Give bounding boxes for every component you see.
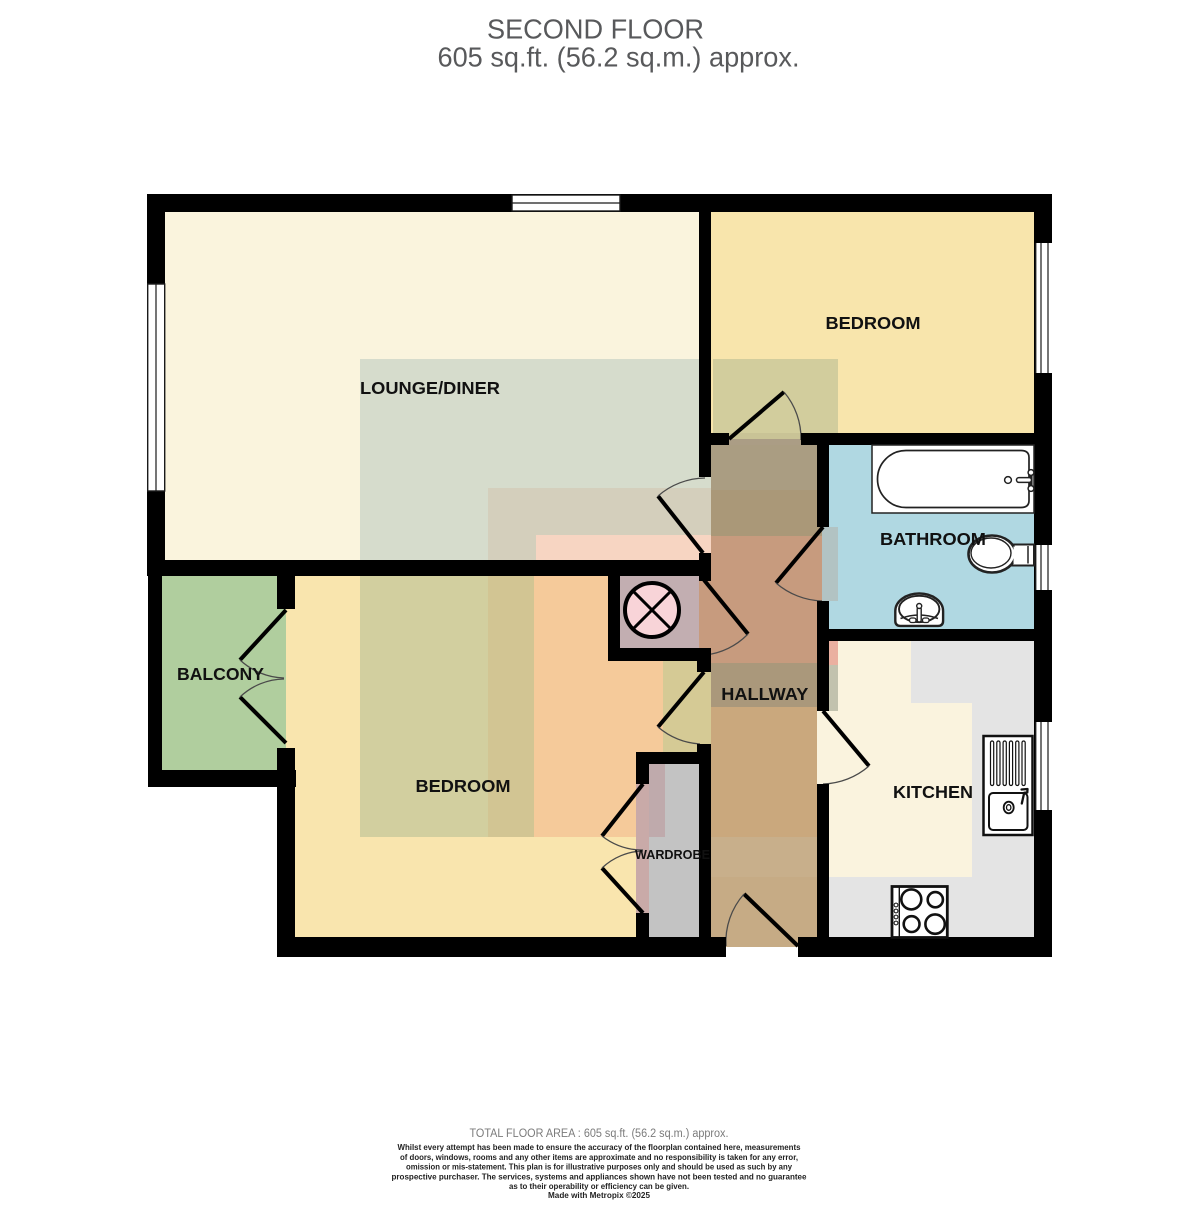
svg-text:omission or mis-statement. Thi: omission or mis-statement. This plan is …: [406, 1162, 792, 1172]
svg-text:Made with Metropix ©2025: Made with Metropix ©2025: [548, 1190, 650, 1200]
svg-text:BEDROOM: BEDROOM: [826, 313, 921, 333]
svg-text:WARDROBE: WARDROBE: [635, 848, 710, 862]
svg-text:KITCHEN: KITCHEN: [893, 782, 973, 802]
svg-text:BATHROOM: BATHROOM: [880, 529, 986, 549]
svg-text:BEDROOM: BEDROOM: [416, 776, 511, 796]
svg-text:605 sq.ft. (56.2 sq.m.) approx: 605 sq.ft. (56.2 sq.m.) approx.: [438, 42, 800, 73]
svg-text:Whilst every attempt has been: Whilst every attempt has been made to en…: [398, 1142, 801, 1152]
svg-text:BALCONY: BALCONY: [177, 664, 264, 684]
svg-text:SECOND FLOOR: SECOND FLOOR: [487, 14, 704, 45]
svg-text:HALLWAY: HALLWAY: [721, 684, 808, 704]
svg-text:TOTAL FLOOR AREA : 605 sq.ft.: TOTAL FLOOR AREA : 605 sq.ft. (56.2 sq.m…: [470, 1128, 729, 1140]
svg-text:prospective purchaser. The ser: prospective purchaser. The services, sys…: [392, 1171, 807, 1181]
svg-text:LOUNGE/DINER: LOUNGE/DINER: [360, 378, 500, 398]
svg-text:of doors, windows, rooms and a: of doors, windows, rooms and any other i…: [400, 1152, 798, 1162]
